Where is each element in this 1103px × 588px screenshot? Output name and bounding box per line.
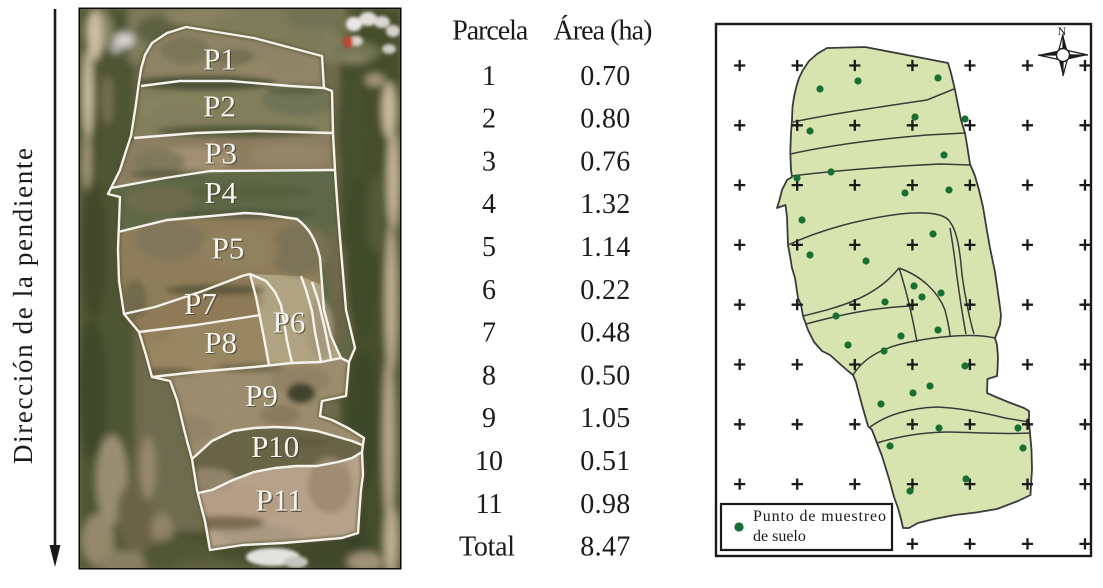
svg-text:1.14: 1.14 xyxy=(580,232,630,263)
svg-text:0.70: 0.70 xyxy=(580,61,630,92)
svg-text:P9: P9 xyxy=(245,378,278,413)
svg-text:0.51: 0.51 xyxy=(580,446,630,477)
svg-text:P10: P10 xyxy=(251,429,299,464)
svg-text:0.80: 0.80 xyxy=(580,104,630,135)
svg-text:Área (ha): Área (ha) xyxy=(553,16,652,47)
svg-text:P6: P6 xyxy=(273,305,306,340)
svg-text:0.48: 0.48 xyxy=(580,318,630,349)
svg-text:P4: P4 xyxy=(204,175,237,210)
svg-text:Total: Total xyxy=(459,532,515,563)
svg-text:7: 7 xyxy=(482,318,496,349)
svg-text:Punto de muestreo: Punto de muestreo xyxy=(753,508,886,525)
svg-text:P3: P3 xyxy=(204,136,237,171)
svg-text:6: 6 xyxy=(482,275,496,306)
svg-text:Parcela: Parcela xyxy=(452,16,529,47)
svg-text:3: 3 xyxy=(482,146,496,177)
svg-text:8: 8 xyxy=(482,360,496,391)
svg-text:5: 5 xyxy=(482,232,496,263)
svg-text:Dirección de la pendiente: Dirección de la pendiente xyxy=(8,148,38,464)
svg-text:9: 9 xyxy=(482,403,496,434)
svg-text:11: 11 xyxy=(476,489,503,520)
svg-text:P8: P8 xyxy=(204,325,237,360)
svg-text:2: 2 xyxy=(482,104,496,135)
svg-text:P5: P5 xyxy=(212,231,245,266)
svg-text:N: N xyxy=(1058,24,1067,38)
svg-text:10: 10 xyxy=(475,446,503,477)
svg-text:P1: P1 xyxy=(203,42,236,77)
svg-text:P7: P7 xyxy=(184,286,217,321)
svg-text:de suelo: de suelo xyxy=(753,528,806,545)
svg-text:0.98: 0.98 xyxy=(580,489,630,520)
svg-text:P11: P11 xyxy=(256,483,303,518)
svg-text:0.22: 0.22 xyxy=(580,275,630,306)
svg-text:0.50: 0.50 xyxy=(580,360,630,391)
svg-text:1: 1 xyxy=(482,61,496,92)
svg-text:1.32: 1.32 xyxy=(580,189,630,220)
svg-text:8.47: 8.47 xyxy=(580,532,630,563)
svg-text:P2: P2 xyxy=(203,89,236,124)
svg-text:1.05: 1.05 xyxy=(580,403,630,434)
svg-text:0.76: 0.76 xyxy=(580,146,630,177)
svg-text:4: 4 xyxy=(482,189,496,220)
